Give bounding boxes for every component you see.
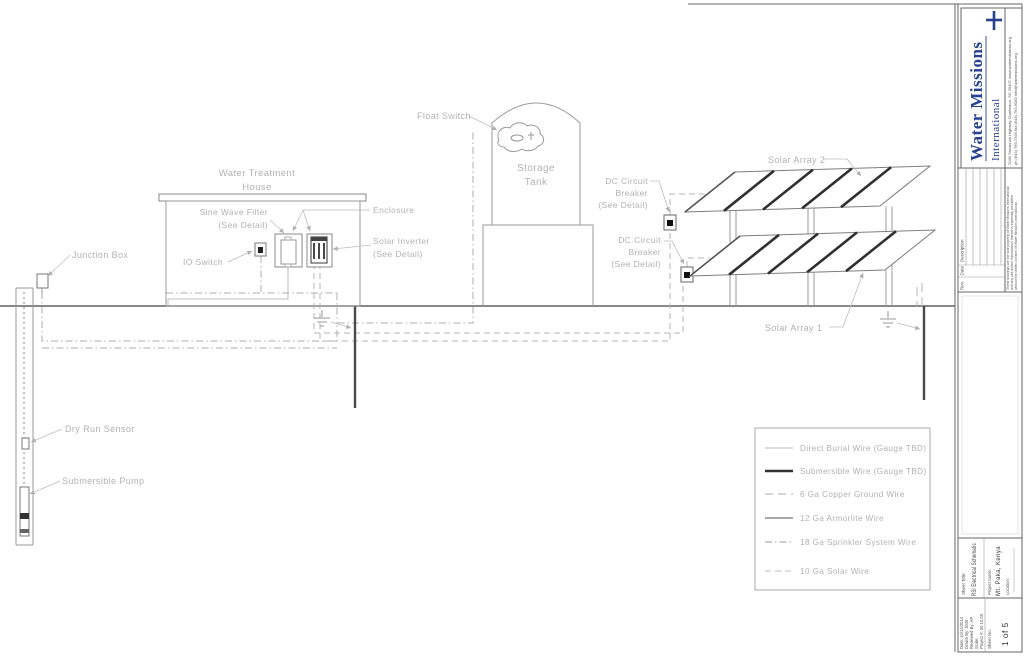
dc-breaker1-label-line3: (See Detail) — [598, 200, 648, 210]
dry-run-sensor-label: Dry Run Sensor — [65, 424, 135, 434]
sheet-info-block: Sheet Title: RSI Electrical Schematic Pr… — [958, 538, 1022, 652]
org-address-line1: 2049 Savannah Highway Charleston, SC 294… — [1007, 37, 1012, 165]
house-roof — [159, 194, 366, 201]
legend-item-direct-burial: Direct Burial Wire (Gauge TBD) — [800, 444, 927, 453]
sine-wave-filter-label-line1: Sine Wave Filter — [200, 207, 268, 217]
solar-inverter-label-line1: Solar Inverter — [373, 236, 430, 246]
sheet-no-value: 1 of 5 — [1000, 622, 1010, 646]
legend-item-copper-ground: 6 Ga Copper Ground Wire — [800, 490, 905, 499]
title-block: Water Missions International 2049 Savann… — [958, 8, 1022, 652]
location-label: Location: — [1005, 578, 1010, 595]
storage-tank: Float Switch Storage Tank — [417, 103, 593, 306]
project-name-label: Project name: — [987, 569, 992, 595]
storage-tank-label-line2: Tank — [525, 177, 548, 188]
project-name-value: Mt. Paka, Kenya — [996, 546, 1002, 596]
legend-item-sprinkler: 18 Ga Sprinkler System Wire — [800, 538, 916, 547]
ground-rod-house — [314, 306, 355, 408]
revision-header-description: Description — [960, 239, 965, 262]
sheet-title-label: Sheet Title: — [961, 572, 966, 595]
storage-tank-label-line1: Storage — [517, 163, 555, 174]
float-switch-label: Float Switch — [417, 111, 471, 121]
dc-breaker2-label-line3: (See Detail) — [611, 259, 661, 269]
junction-box-label: Junction Box — [72, 250, 128, 260]
array-ground-wire — [917, 283, 922, 306]
pump-power-wire — [168, 264, 288, 306]
field-project-no: Project #: 00.10.05 — [979, 613, 984, 649]
revision-table: Rev. Date Description These drawings are… — [958, 168, 1022, 292]
solar-inverter-label-line2: (See Detail) — [373, 249, 423, 259]
org-name-main: Water Missions — [967, 41, 986, 161]
schematic-sheet: Junction Box Dry Run Sensor Submersible … — [0, 0, 1024, 656]
water-treatment-house: Water Treatment House Sine Wave Filter (… — [159, 168, 430, 306]
dc-breaker2-label-line1: DC Circuit — [618, 235, 661, 245]
well-assembly: Junction Box Dry Run Sensor Submersible … — [16, 250, 144, 545]
sheet-no-label: Sheet No. — [987, 629, 992, 649]
submersible-pump-label: Submersible Pump — [62, 476, 144, 486]
solar-inverter-enclosure — [307, 234, 332, 267]
cross-icon — [986, 11, 1002, 30]
solar-array-2-label: Solar Array 2 — [768, 155, 825, 165]
dry-run-sensor — [22, 438, 29, 449]
dc-breaker1-label-line2: Breaker — [615, 188, 648, 198]
org-name-sub: International — [990, 98, 1002, 161]
tank-pedestal — [483, 225, 593, 306]
title-block-spare-cell — [958, 292, 1022, 538]
legend-item-submersible: Submersible Wire (Gauge TBD) — [800, 467, 927, 476]
enclosure-label: Enclosure — [373, 205, 414, 215]
logo-block: Water Missions International 2049 Savann… — [961, 8, 1022, 168]
io-switch-label: IO Switch — [183, 257, 223, 267]
submersible-pump — [20, 487, 29, 536]
dc-circuit-breaker-1 — [664, 215, 676, 230]
dc-breaker1-label-line1: DC Circuit — [605, 176, 648, 186]
sheet-title-value: RSI Electrical Schematic — [972, 543, 978, 596]
schematic-canvas: Junction Box Dry Run Sensor Submersible … — [0, 0, 1024, 656]
house-label-line2: House — [242, 182, 271, 193]
solar-array-1 — [690, 230, 935, 306]
revision-header-rev: Rev. — [960, 281, 965, 290]
sine-wave-filter-label-line2: (See Detail) — [218, 220, 268, 230]
house-label-line1: Water Treatment — [219, 168, 295, 179]
legend-item-solar-wire: 10 Ga Solar Wire — [800, 567, 869, 576]
io-switch — [255, 243, 266, 256]
disclaimer-line3: without the written consent of Water Mis… — [1014, 202, 1018, 290]
junction-box — [37, 274, 48, 294]
ground-rod-array — [880, 306, 924, 400]
org-address-line2: ph (843) 769-7395 fax (843) 763-6082 inf… — [1013, 53, 1018, 165]
revision-header-date: Date — [960, 265, 965, 275]
solar-array-1-label: Solar Array 1 — [765, 323, 822, 333]
legend-item-armorlite: 12 Ga Armorlite Wire — [800, 514, 884, 523]
sine-wave-filter-enclosure — [275, 234, 302, 267]
legend: Direct Burial Wire (Gauge TBD) Submersib… — [755, 428, 930, 590]
dc-breaker2-label-line2: Breaker — [628, 247, 661, 257]
float-switch — [498, 123, 544, 152]
